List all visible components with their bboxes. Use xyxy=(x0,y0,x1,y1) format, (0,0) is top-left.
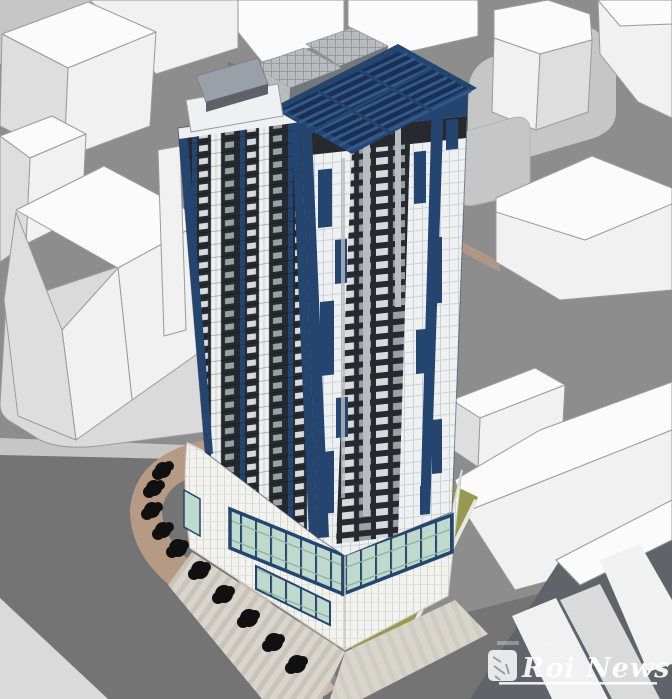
facade-post xyxy=(363,126,370,516)
watermark-brand-text: Roi News xyxy=(521,653,670,684)
facade-post xyxy=(341,158,345,498)
tower-right-facade xyxy=(300,94,468,556)
architectural-rendering: 로이뉴스 Roi News xyxy=(0,0,672,699)
roi-logo-icon xyxy=(488,650,517,681)
building-block xyxy=(492,0,592,130)
watermark-underline xyxy=(499,682,657,685)
glass-pane-corner xyxy=(184,490,200,536)
facade-post xyxy=(395,112,401,307)
watermark-small-text: 로이뉴스 xyxy=(537,641,560,649)
city-scene: 로이뉴스 Roi News xyxy=(0,0,672,699)
